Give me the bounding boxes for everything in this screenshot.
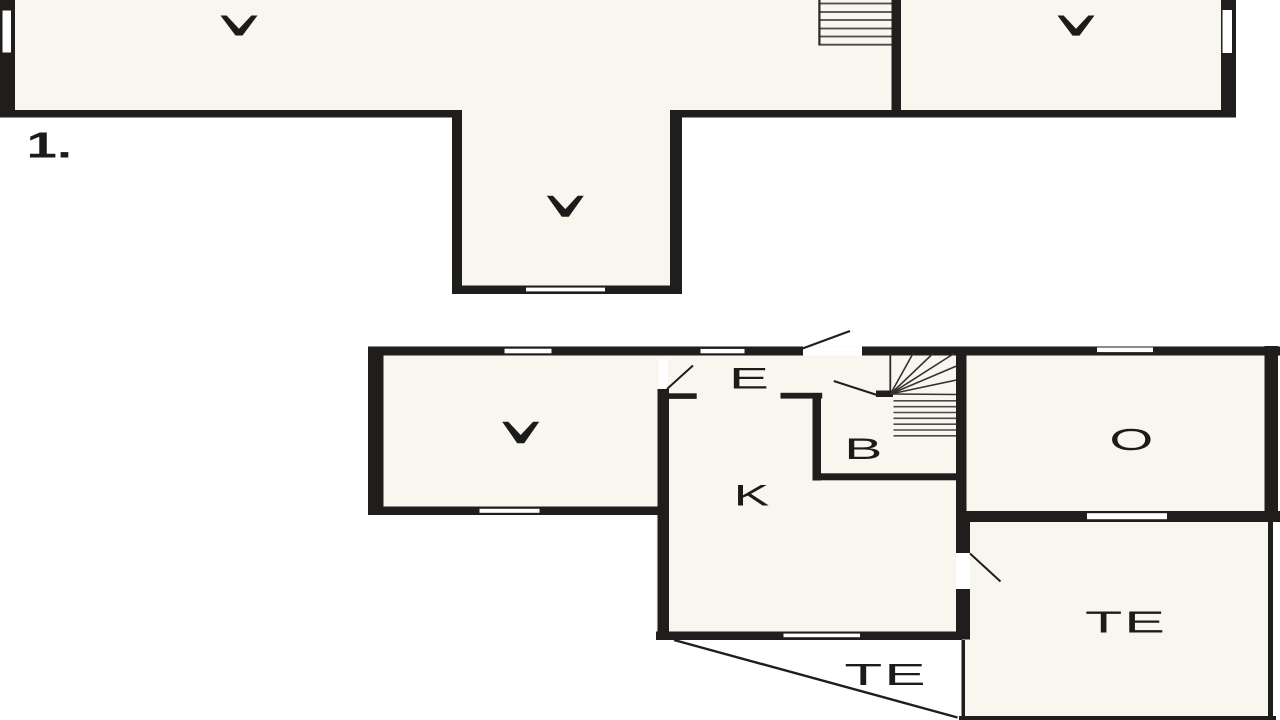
svg-text:TE: TE xyxy=(1085,605,1167,639)
svg-text:O: O xyxy=(1109,423,1153,457)
svg-text:B: B xyxy=(844,433,882,466)
svg-text:E: E xyxy=(729,362,769,395)
svg-text:TE: TE xyxy=(844,658,927,692)
svg-text:K: K xyxy=(734,480,770,513)
svg-text:1.: 1. xyxy=(27,125,73,165)
